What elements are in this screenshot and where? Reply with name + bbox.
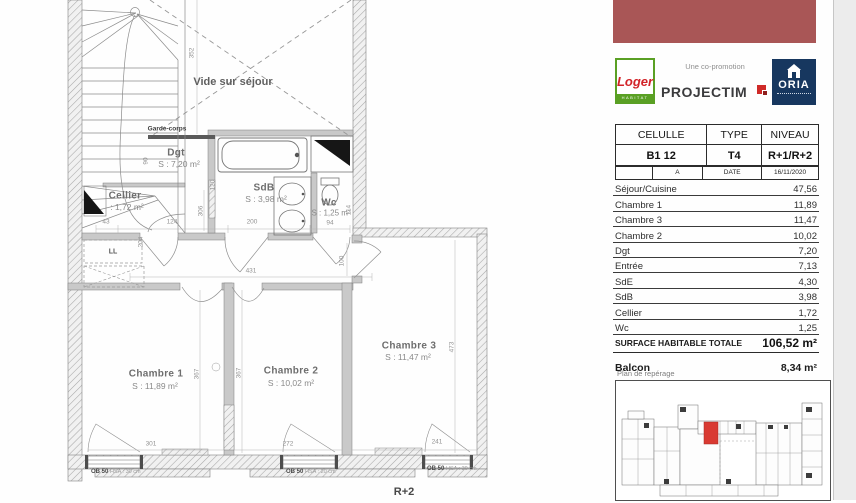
- revision-date-label: DATE: [703, 166, 762, 180]
- header-color-block: [613, 0, 816, 43]
- room-area-ch2: S : 10,02 m²: [268, 378, 314, 388]
- list-item: Dgt7,20: [613, 243, 819, 258]
- room-label-ch3: Chambre 3: [382, 341, 436, 352]
- floor-plan-drawing: [0, 0, 540, 500]
- room-label-ch1: Chambre 1: [129, 369, 183, 380]
- list-item: SdE4,30: [613, 273, 819, 288]
- dim-200: 200: [247, 219, 258, 226]
- double-basin: [274, 177, 311, 235]
- room-label-cellier: Cellier: [109, 191, 142, 202]
- value-niveau: R+1/R+2: [762, 145, 819, 167]
- garde-corps-label: Garde-corps: [148, 126, 187, 133]
- keyplan-drawing: [616, 381, 828, 498]
- dim-272: 272: [283, 441, 294, 448]
- garde-corps-rail: [148, 135, 215, 139]
- projectim-wordmark: PROJECTIM: [661, 84, 747, 100]
- room-area-cellier: : 1,72 m²: [110, 202, 144, 212]
- list-item: SdB3,98: [613, 289, 819, 304]
- dim-241: 241: [432, 439, 443, 446]
- dim-90: 90: [143, 157, 150, 164]
- room-area-sdb: S : 3,98 m²: [245, 194, 287, 204]
- floor-plan-sheet: { "colors": { "header_block": "#a95656",…: [0, 0, 856, 500]
- list-item: Séjour/Cuisine47,56: [613, 181, 819, 196]
- window-label-1: OB 50 HSA : 30 cm: [91, 469, 141, 475]
- dim-124: 124: [167, 219, 178, 226]
- radiators: [162, 180, 422, 455]
- oria-logo: ORIA: [772, 59, 816, 105]
- room-label-ch2: Chambre 2: [264, 366, 318, 377]
- dim-367-a: 367: [194, 369, 201, 380]
- value-celulle: B1 12: [616, 145, 707, 167]
- room-area-ch1: S : 11,89 m²: [132, 381, 178, 391]
- window-label-3: OB 50 HSA : 30 cm: [427, 466, 477, 472]
- list-item: Chambre 311,47: [613, 212, 819, 227]
- list-item: Chambre 111,89: [613, 196, 819, 211]
- dim-367-b: 367: [236, 368, 243, 379]
- level-label: R+2: [394, 486, 415, 498]
- loger-logo: Loger HABITAT: [615, 58, 655, 104]
- loger-subtitle: HABITAT: [617, 94, 653, 102]
- dim-114: 114: [346, 205, 353, 215]
- keyplan-highlighted-unit: [704, 422, 718, 444]
- dim-100: 100: [339, 256, 346, 267]
- room-label-sdb: SdB: [254, 183, 275, 194]
- void-label: Vide sur séjour: [193, 76, 272, 88]
- page-edge-strip: [833, 0, 856, 500]
- oria-wordmark: ORIA: [778, 79, 810, 91]
- revision-index: A: [652, 166, 703, 180]
- room-label-wc: Wc: [321, 198, 337, 209]
- list-item: Chambre 210,02: [613, 227, 819, 242]
- dim-431: 431: [246, 268, 257, 275]
- room-area-ch3: S : 11,47 m²: [385, 352, 431, 362]
- dim-301: 301: [146, 441, 157, 448]
- revision-table: A DATE 16/11/2020: [615, 165, 819, 180]
- void-cross: [150, 0, 351, 137]
- dim-473: 473: [449, 342, 456, 353]
- dim-352: 352: [189, 48, 196, 59]
- list-item: Wc1,25: [613, 320, 819, 335]
- header-celulle: CELULLE: [616, 125, 707, 145]
- dim-204: 204: [138, 237, 145, 248]
- list-item: Cellier1,72: [613, 304, 819, 319]
- room-area-dgt: S : 7,20 m²: [158, 159, 200, 169]
- dim-94: 94: [326, 220, 333, 227]
- co-promotion-text: Une co-promotion: [660, 62, 770, 71]
- header-niveau: NIVEAU: [762, 125, 819, 145]
- washer-label: LL: [109, 249, 118, 256]
- oria-tagline-line: [777, 93, 811, 94]
- dim-43: 43: [102, 219, 109, 226]
- window-label-2: OB 50 HSA : 20 cm: [286, 469, 336, 475]
- keyplan: [615, 380, 831, 501]
- unit-info-table: CELULLE TYPE NIVEAU B1 12 T4 R+1/R+2: [615, 124, 819, 167]
- dim-120: 120: [210, 180, 217, 191]
- total-surface-row: SURFACE HABITABLE TOTALE 106,52 m²: [613, 335, 819, 353]
- revision-date-value: 16/11/2020: [762, 166, 819, 180]
- header-type: TYPE: [707, 125, 762, 145]
- projectim-logo-icon: [757, 85, 766, 94]
- keyplan-title: Plan de repérage: [617, 369, 675, 378]
- room-label-dgt: Dgt: [167, 148, 185, 159]
- dim-306: 306: [198, 206, 205, 217]
- exterior-walls: [68, 0, 487, 481]
- list-item: Entrée7,13: [613, 258, 819, 273]
- room-areas-list: Séjour/Cuisine47,56 Chambre 111,89 Chamb…: [613, 181, 819, 374]
- bathtub: [218, 138, 307, 172]
- value-type: T4: [707, 145, 762, 167]
- revision-empty-cell: [616, 166, 653, 180]
- house-icon: [787, 64, 801, 78]
- shaft: [311, 136, 353, 172]
- loger-wordmark: Loger: [617, 70, 653, 94]
